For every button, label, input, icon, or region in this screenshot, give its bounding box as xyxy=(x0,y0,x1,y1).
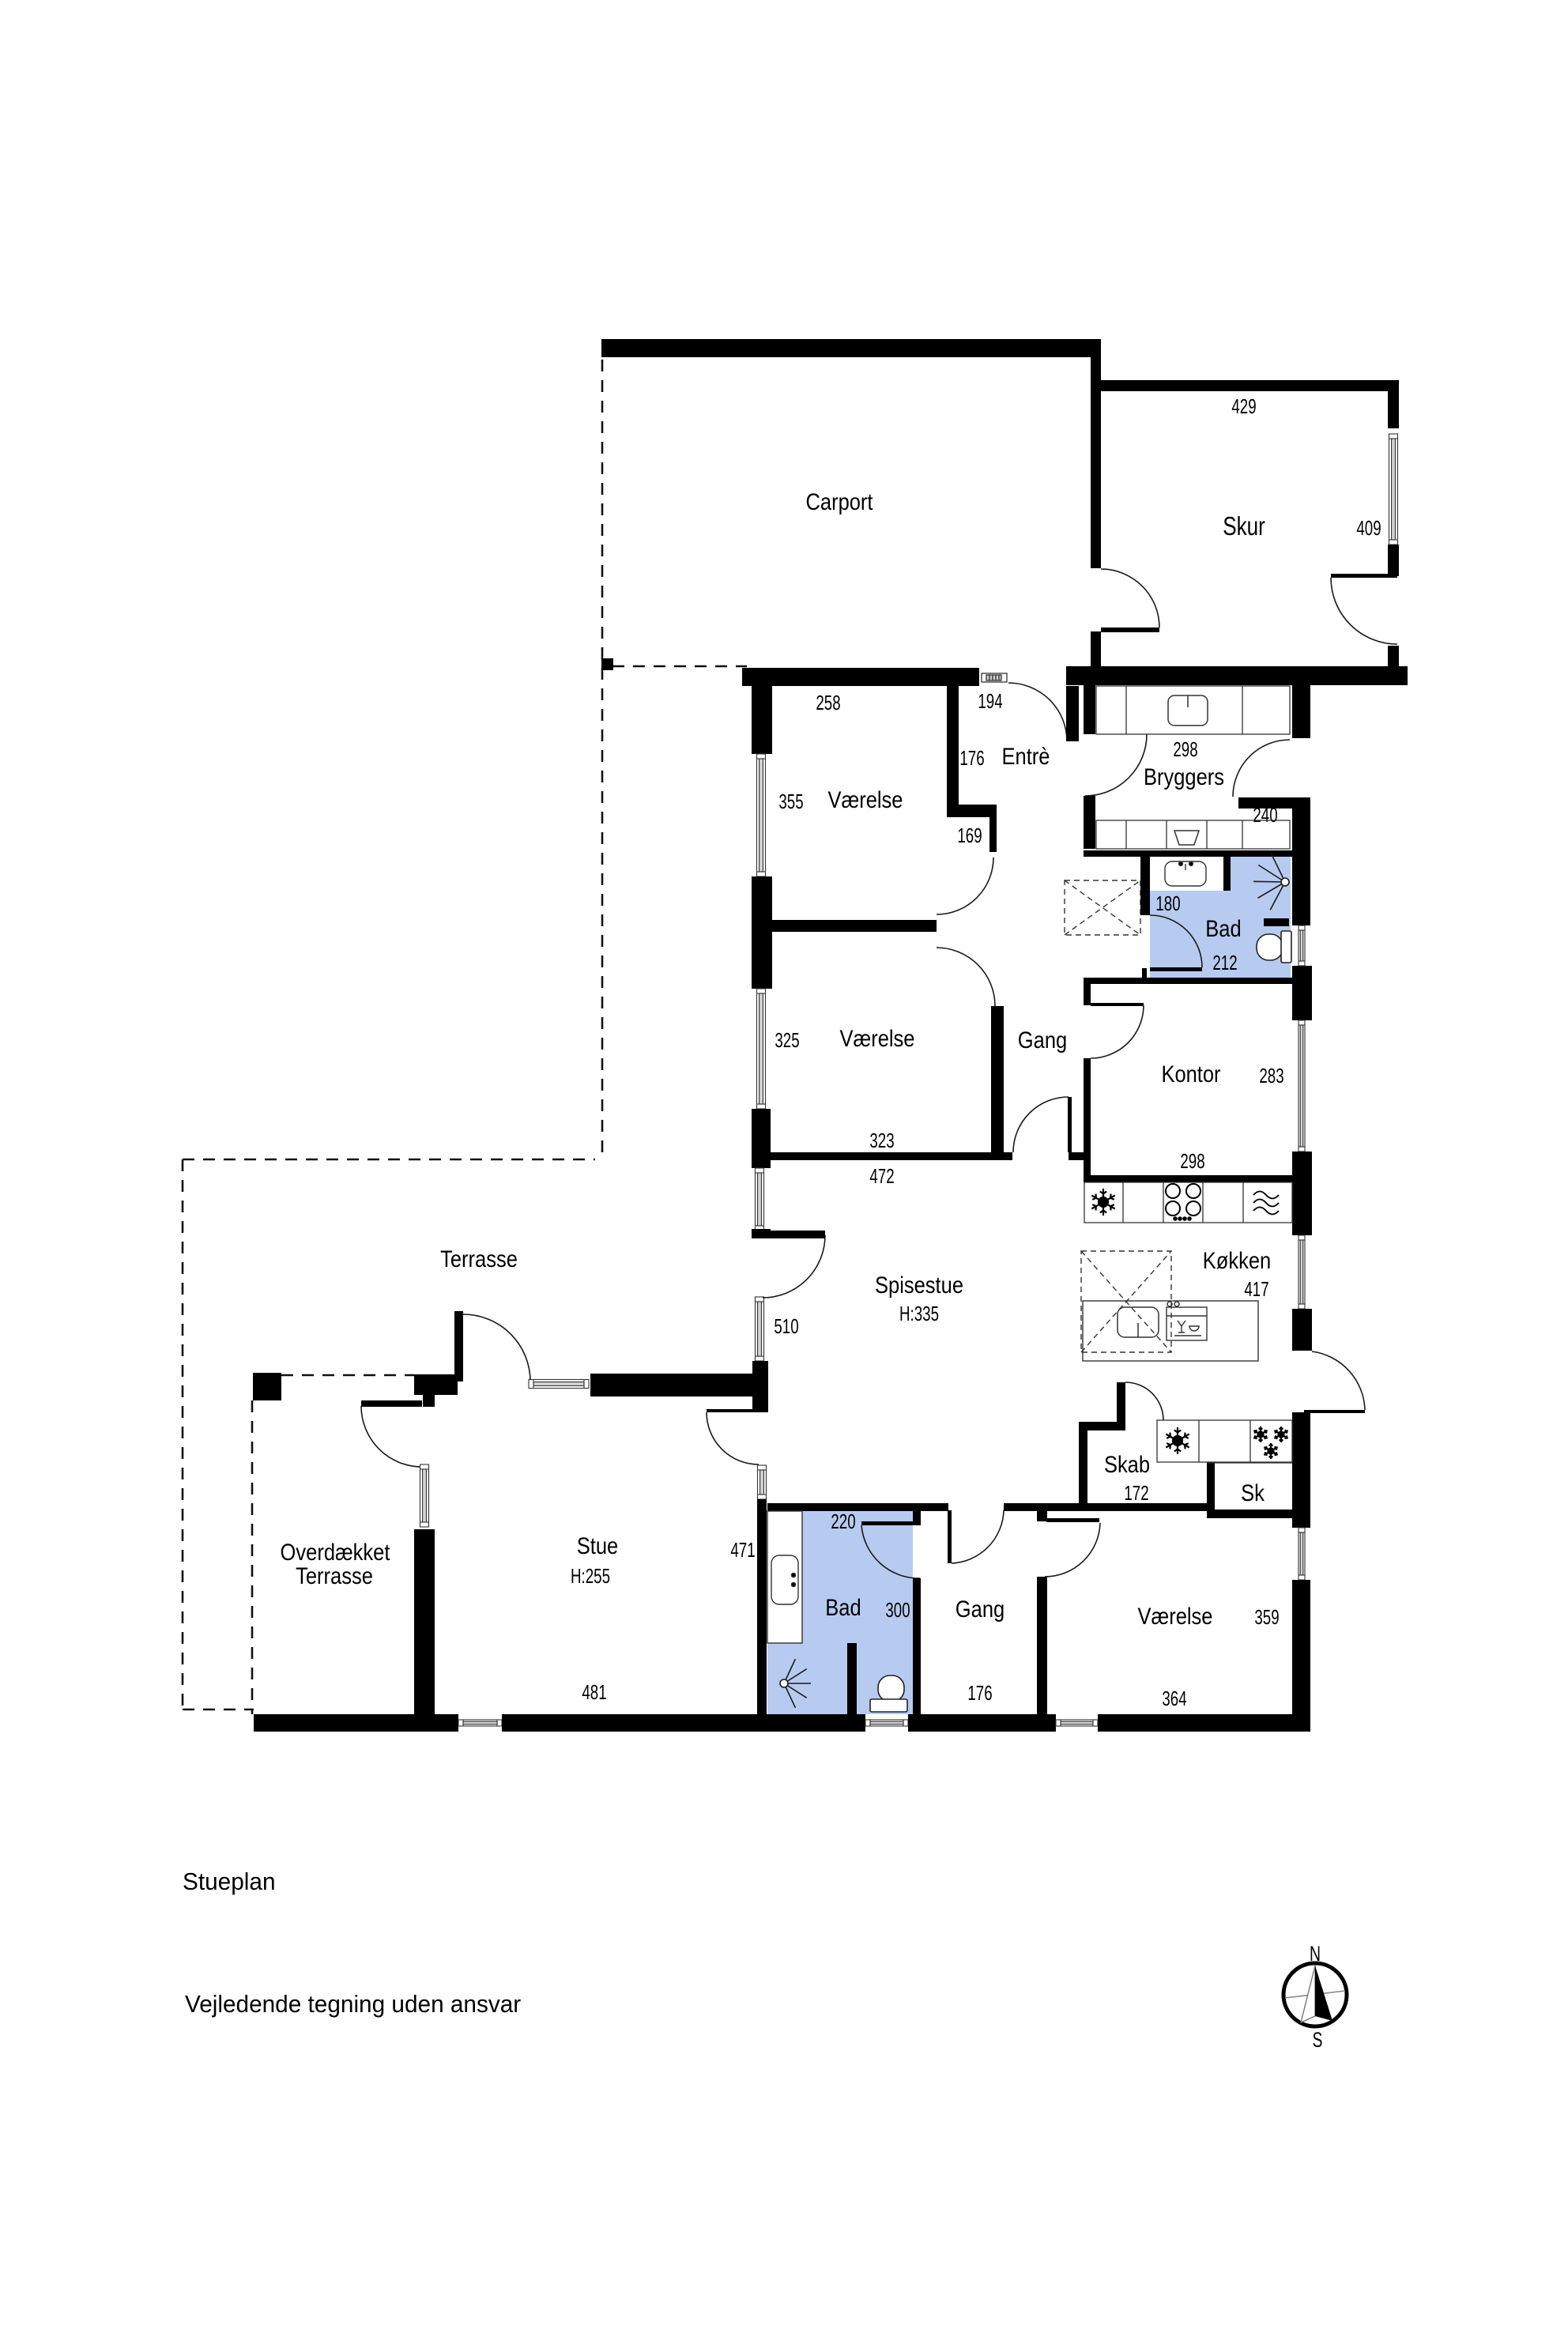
svg-text:Entrè: Entrè xyxy=(1002,744,1050,770)
svg-text:169: 169 xyxy=(957,824,982,847)
svg-text:359: 359 xyxy=(1254,1605,1279,1629)
svg-text:194: 194 xyxy=(978,689,1002,713)
svg-text:Skab: Skab xyxy=(1104,1452,1150,1478)
svg-text:Carport: Carport xyxy=(806,489,874,515)
svg-text:Stue: Stue xyxy=(577,1533,619,1559)
svg-text:Gang: Gang xyxy=(1018,1027,1067,1053)
svg-text:Spisestue: Spisestue xyxy=(875,1272,963,1298)
svg-text:Terrasse: Terrasse xyxy=(440,1246,518,1272)
svg-text:283: 283 xyxy=(1259,1064,1283,1087)
svg-text:172: 172 xyxy=(1124,1481,1148,1505)
svg-text:220: 220 xyxy=(831,1510,855,1533)
svg-text:355: 355 xyxy=(778,790,803,813)
svg-text:Køkken: Køkken xyxy=(1203,1248,1271,1274)
svg-text:Skur: Skur xyxy=(1223,511,1265,541)
svg-text:240: 240 xyxy=(1253,803,1277,827)
svg-text:S: S xyxy=(1313,2028,1323,2052)
svg-text:364: 364 xyxy=(1162,1687,1186,1710)
svg-text:H:335: H:335 xyxy=(899,1302,939,1325)
svg-text:300: 300 xyxy=(885,1598,910,1622)
svg-text:Bryggers: Bryggers xyxy=(1144,764,1224,790)
svg-text:Stueplan: Stueplan xyxy=(183,1868,276,1895)
svg-text:180: 180 xyxy=(1155,891,1180,915)
svg-text:409: 409 xyxy=(1356,516,1381,540)
svg-text:N: N xyxy=(1310,1942,1321,1966)
svg-text:Bad: Bad xyxy=(1205,916,1241,942)
svg-text:176: 176 xyxy=(967,1681,992,1705)
svg-text:429: 429 xyxy=(1231,394,1256,418)
svg-text:298: 298 xyxy=(1180,1149,1204,1173)
svg-text:258: 258 xyxy=(816,691,840,714)
svg-text:481: 481 xyxy=(582,1680,606,1704)
svg-text:Kontor: Kontor xyxy=(1161,1061,1220,1087)
svg-text:H:255: H:255 xyxy=(571,1564,610,1588)
svg-text:Overdækket: Overdækket xyxy=(281,1540,390,1566)
svg-text:Gang: Gang xyxy=(955,1596,1004,1623)
svg-text:323: 323 xyxy=(869,1129,894,1152)
svg-text:471: 471 xyxy=(730,1538,755,1562)
svg-text:325: 325 xyxy=(775,1028,799,1052)
svg-text:Terrasse: Terrasse xyxy=(296,1563,373,1589)
svg-text:298: 298 xyxy=(1173,737,1197,761)
svg-text:472: 472 xyxy=(869,1164,894,1188)
svg-text:Bad: Bad xyxy=(825,1595,861,1621)
svg-text:176: 176 xyxy=(959,746,984,770)
svg-text:212: 212 xyxy=(1212,951,1237,974)
svg-text:417: 417 xyxy=(1244,1277,1268,1301)
svg-text:Værelse: Værelse xyxy=(1138,1604,1213,1630)
svg-text:Værelse: Værelse xyxy=(840,1026,915,1052)
svg-text:510: 510 xyxy=(774,1314,798,1338)
svg-text:Vejledende tegning uden ansvar: Vejledende tegning uden ansvar xyxy=(185,1990,521,2018)
svg-text:Værelse: Værelse xyxy=(828,787,903,813)
svg-text:Sk: Sk xyxy=(1241,1480,1265,1506)
